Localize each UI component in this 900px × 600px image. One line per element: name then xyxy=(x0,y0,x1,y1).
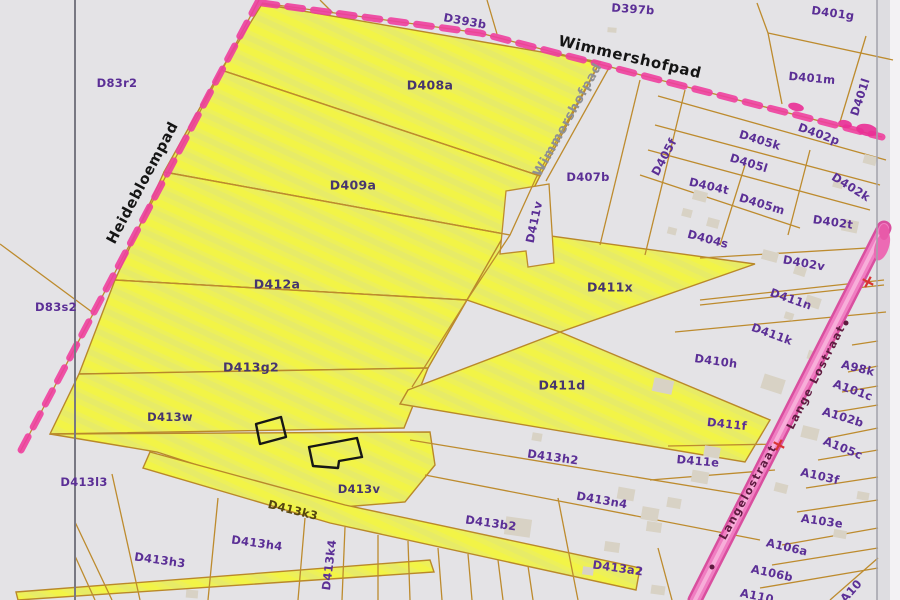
parcel-label-D407b: D407b xyxy=(566,170,609,184)
parcel-label-D411d: D411d xyxy=(539,378,586,393)
parcel-label-D413l3: D413l3 xyxy=(60,475,107,489)
parcel-label-D83r2: D83r2 xyxy=(97,76,138,90)
boundary-dot-marker xyxy=(710,565,715,570)
parcel-label-D409a: D409a xyxy=(330,178,376,193)
parcel-label-D413v: D413v xyxy=(338,482,381,496)
parcel-label-D412a: D412a xyxy=(254,277,300,292)
parcel-label-D411x: D411x xyxy=(587,280,633,295)
parcel-label-D408a: D408a xyxy=(407,78,453,93)
parcel-label-D413g2: D413g2 xyxy=(223,360,279,375)
parcel-label-D83s2: D83s2 xyxy=(35,300,77,314)
parcel-label-D413w: D413w xyxy=(147,410,193,424)
parcel-label-D397b: D397b xyxy=(611,1,655,18)
boundary-dot-marker xyxy=(844,321,849,326)
cadastral-map: D83r2D393bD397bD401gD401mD401lD402pD405k… xyxy=(0,0,900,600)
